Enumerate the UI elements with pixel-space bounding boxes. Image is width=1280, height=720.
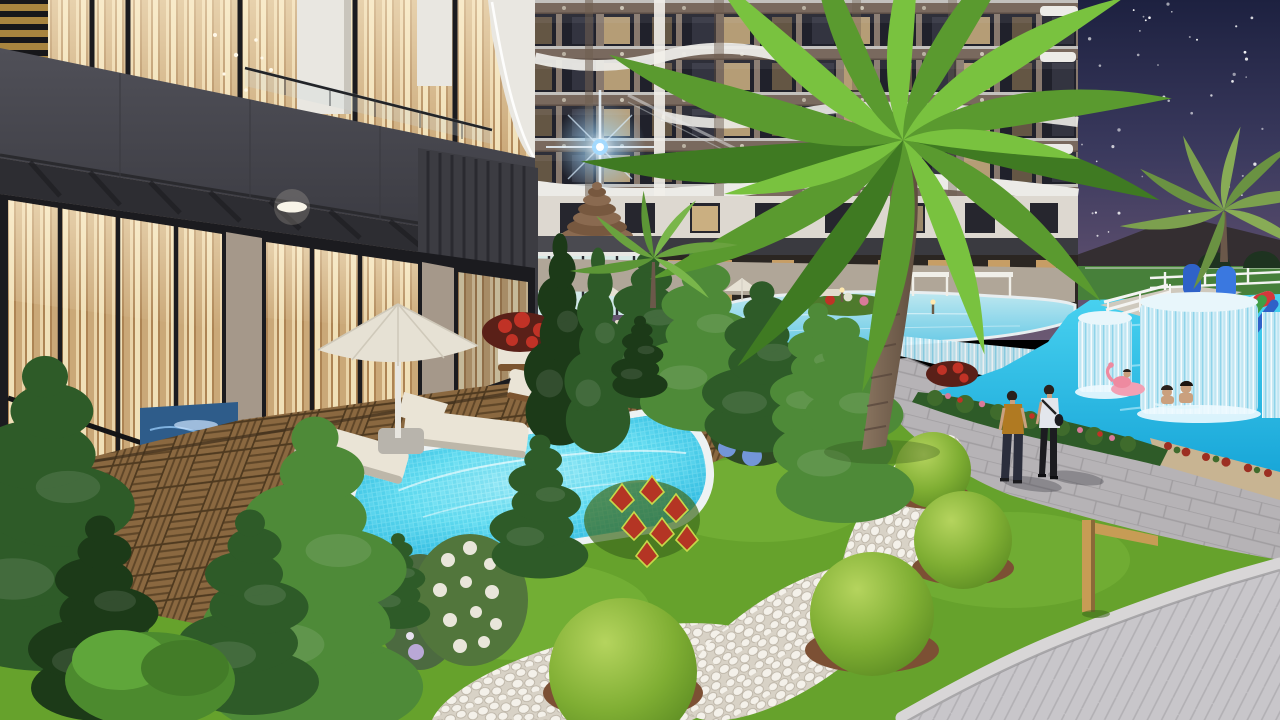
star [1157,64,1159,66]
star [1251,17,1254,20]
star [1092,212,1094,214]
render-canvas [0,0,1280,720]
star [1108,231,1110,233]
star [1095,212,1097,214]
star [1133,9,1135,11]
star [1261,128,1263,130]
star [1139,30,1141,32]
star [1196,39,1198,41]
star [1242,175,1244,177]
resort-render [0,0,1280,720]
star [1171,11,1173,13]
star [1233,73,1236,76]
star [1235,25,1237,27]
star [1145,19,1147,21]
star [1137,54,1140,57]
star [1245,76,1247,78]
star [1148,16,1151,19]
star [1088,37,1091,40]
star [1117,128,1120,131]
star [1096,161,1098,163]
star [1188,210,1190,212]
star [1166,3,1169,6]
star [1210,94,1212,96]
star [1096,235,1098,237]
star [1167,99,1170,102]
topiary-ball [810,552,934,676]
star [1143,16,1145,18]
topiary-ball [914,491,1012,589]
star [1189,36,1191,38]
round-ceiling-light [277,202,307,213]
white-column [417,0,452,86]
star [1141,176,1143,178]
star [1118,212,1121,215]
star [1253,163,1256,166]
star [1231,80,1234,83]
star [1245,58,1248,61]
star [1111,145,1114,148]
star [1081,144,1083,146]
star [1190,112,1193,115]
star [1099,64,1102,67]
star [1244,51,1247,54]
